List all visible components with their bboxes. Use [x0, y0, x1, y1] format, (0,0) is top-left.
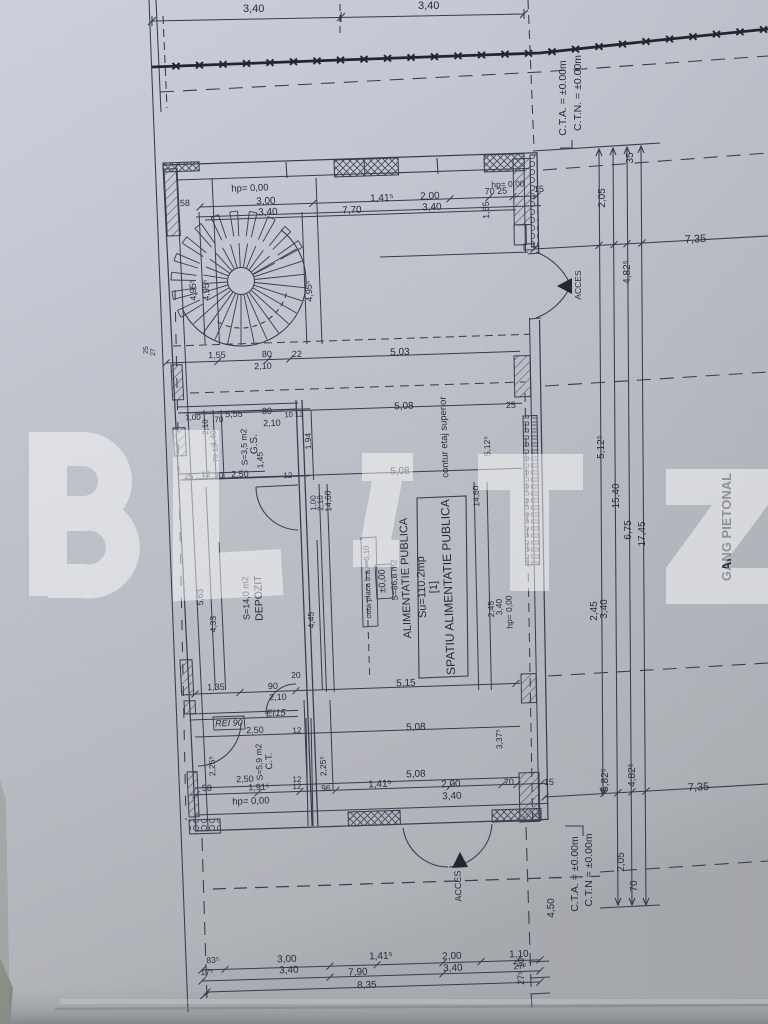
svg-text:4,95⁵: 4,95⁵: [304, 280, 315, 302]
svg-text:3,40: 3,40: [258, 207, 278, 219]
svg-text:1,41⁵: 1,41⁵: [370, 193, 394, 205]
svg-text:4,95⁵: 4,95⁵: [201, 279, 212, 301]
svg-text:3,00: 3,00: [277, 954, 297, 966]
svg-text:ACCES: ACCES: [452, 870, 463, 901]
svg-text:hp= 0,00: hp= 0,00: [503, 595, 514, 629]
svg-text:15: 15: [534, 184, 544, 194]
svg-text:27: 27: [150, 348, 157, 356]
svg-text:2,10: 2,10: [254, 361, 272, 372]
svg-text:1,55: 1,55: [208, 350, 226, 361]
svg-text:4,95⁵: 4,95⁵: [188, 279, 199, 301]
svg-text:1,10: 1,10: [509, 949, 529, 961]
svg-text:1,41⁵: 1,41⁵: [368, 779, 392, 791]
svg-text:4,82⁵: 4,82⁵: [622, 260, 633, 284]
svg-text:hp= 0,00: hp= 0,00: [231, 182, 269, 194]
svg-text:2,10: 2,10: [263, 418, 281, 429]
svg-text:2,50: 2,50: [246, 725, 264, 736]
svg-text:5,12⁵: 5,12⁵: [482, 436, 493, 456]
svg-text:2,05: 2,05: [616, 852, 627, 872]
svg-text:4,82⁵: 4,82⁵: [627, 763, 638, 787]
svg-text:hp= 0,00: hp= 0,00: [491, 178, 525, 189]
svg-text:2,25⁵: 2,25⁵: [207, 756, 218, 776]
svg-text:4,33: 4,33: [208, 615, 219, 632]
svg-text:5,15: 5,15: [396, 678, 416, 690]
svg-text:1,94: 1,94: [303, 432, 314, 449]
svg-text:8,35: 8,35: [357, 980, 377, 992]
svg-text:2,00: 2,00: [442, 951, 462, 963]
svg-text:17⁵: 17⁵: [200, 967, 213, 977]
svg-text:1,91⁵: 1,91⁵: [248, 782, 270, 793]
svg-text:3,00: 3,00: [256, 196, 276, 208]
svg-text:3,40: 3,40: [418, 0, 439, 12]
svg-text:Su=110.2mp: Su=110.2mp: [415, 556, 429, 618]
svg-text:6,75: 6,75: [623, 520, 634, 540]
svg-text:5,12⁵: 5,12⁵: [596, 435, 607, 459]
svg-text:5,08: 5,08: [394, 401, 414, 413]
svg-text:S=3,5 m2: S=3,5 m2: [238, 428, 249, 465]
svg-text:C.T.N = ±0.00m: C.T.N = ±0.00m: [583, 833, 595, 906]
svg-text:15,40: 15,40: [611, 483, 622, 508]
svg-text:70: 70: [214, 415, 224, 424]
svg-text:90: 90: [268, 681, 278, 691]
svg-text:80: 80: [262, 406, 272, 416]
svg-text:7,35: 7,35: [688, 781, 710, 794]
svg-text:35: 35: [625, 152, 636, 164]
svg-text:3,40: 3,40: [422, 202, 442, 214]
svg-text:1,35: 1,35: [207, 682, 225, 693]
svg-text:C.T.: C.T.: [264, 752, 276, 769]
svg-text:±0,00: ±0,00: [377, 569, 389, 593]
svg-text:96: 96: [321, 783, 331, 793]
svg-text:2,10: 2,10: [269, 692, 287, 703]
svg-text:15: 15: [544, 777, 554, 787]
svg-text:EI15: EI15: [266, 708, 287, 720]
svg-text:83⁵: 83⁵: [206, 955, 219, 965]
svg-text:3,40: 3,40: [279, 965, 299, 977]
svg-text:27⁵: 27⁵: [513, 961, 526, 971]
svg-text:1,45: 1,45: [255, 451, 266, 468]
svg-text:5,03: 5,03: [390, 347, 410, 359]
svg-text:20: 20: [291, 670, 301, 680]
svg-text:5,08: 5,08: [406, 722, 426, 734]
svg-text:ACCES: ACCES: [573, 270, 583, 300]
svg-text:80: 80: [262, 349, 272, 359]
svg-text:3,40: 3,40: [442, 791, 462, 803]
svg-text:3,40: 3,40: [243, 3, 264, 15]
svg-text:5,82⁵: 5,82⁵: [600, 768, 611, 792]
svg-text:S=5,9 m2: S=5,9 m2: [253, 743, 264, 780]
svg-text:14,60: 14,60: [323, 490, 334, 512]
svg-text:1,41⁵: 1,41⁵: [369, 951, 393, 963]
svg-text:C.T.A. = ±0.00m: C.T.A. = ±0.00m: [569, 836, 581, 912]
svg-text:5,08: 5,08: [406, 769, 426, 781]
svg-text:7,90: 7,90: [348, 967, 368, 979]
svg-text:[1]: [1]: [428, 581, 440, 594]
svg-text:G.S.: G.S.: [249, 434, 261, 454]
svg-text:70: 70: [629, 880, 640, 892]
svg-text:C.T.N. = ±0.00m: C.T.N. = ±0.00m: [572, 55, 584, 131]
svg-text:58: 58: [180, 198, 190, 208]
svg-text:hp= 0,00: hp= 0,00: [232, 795, 270, 807]
svg-text:3,37⁵: 3,37⁵: [494, 729, 505, 749]
svg-text:4,50: 4,50: [546, 898, 557, 918]
svg-text:7,35: 7,35: [685, 233, 707, 246]
svg-text:2,00: 2,00: [420, 191, 440, 203]
svg-text:3,40: 3,40: [443, 963, 463, 975]
svg-text:12: 12: [292, 782, 302, 791]
svg-text:4,45: 4,45: [306, 611, 317, 628]
svg-text:25: 25: [506, 400, 516, 410]
svg-text:REI 90: REI 90: [215, 718, 243, 729]
svg-text:70: 70: [504, 777, 514, 787]
svg-text:22: 22: [292, 349, 302, 359]
svg-text:2,25⁵: 2,25⁵: [318, 756, 329, 776]
svg-text:2,00: 2,00: [441, 779, 461, 791]
svg-text:58: 58: [202, 783, 212, 793]
svg-text:3,40: 3,40: [599, 599, 610, 619]
svg-text:C.T.A. = ±0.00m: C.T.A. = ±0.00m: [557, 60, 569, 136]
svg-text:5,55: 5,55: [225, 409, 243, 420]
svg-text:7,70: 7,70: [342, 205, 362, 217]
svg-text:17,45: 17,45: [637, 521, 648, 546]
svg-text:12: 12: [292, 726, 302, 735]
svg-text:2,05: 2,05: [597, 188, 608, 208]
